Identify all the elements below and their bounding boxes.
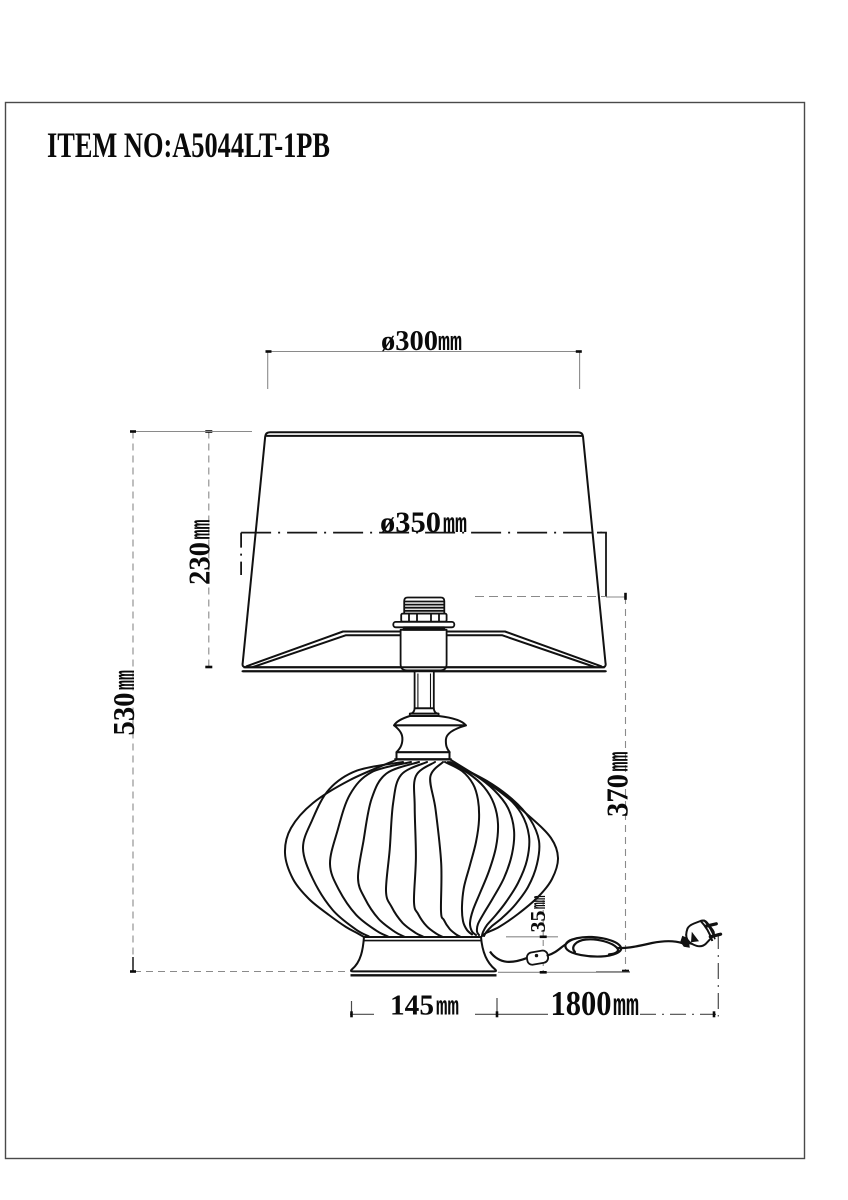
svg-text:530: 530 bbox=[106, 693, 141, 736]
svg-text:ø350: ø350 bbox=[380, 506, 441, 539]
svg-text:145: 145 bbox=[390, 989, 434, 1021]
svg-text:230: 230 bbox=[182, 542, 217, 585]
svg-text:mm: mm bbox=[110, 670, 143, 690]
svg-text:mm: mm bbox=[613, 990, 639, 1025]
svg-text:ITEM NO:A5044LT-1PB: ITEM NO:A5044LT-1PB bbox=[47, 125, 330, 165]
svg-text:mm: mm bbox=[443, 510, 467, 541]
svg-text:mm: mm bbox=[186, 520, 219, 540]
svg-text:35: 35 bbox=[526, 911, 550, 933]
svg-text:mm: mm bbox=[604, 752, 637, 772]
svg-text:mm: mm bbox=[436, 993, 459, 1023]
svg-text:1800: 1800 bbox=[551, 985, 612, 1023]
svg-text:mm: mm bbox=[438, 329, 462, 359]
svg-text:370: 370 bbox=[600, 774, 635, 817]
svg-text:ø300: ø300 bbox=[381, 325, 438, 357]
